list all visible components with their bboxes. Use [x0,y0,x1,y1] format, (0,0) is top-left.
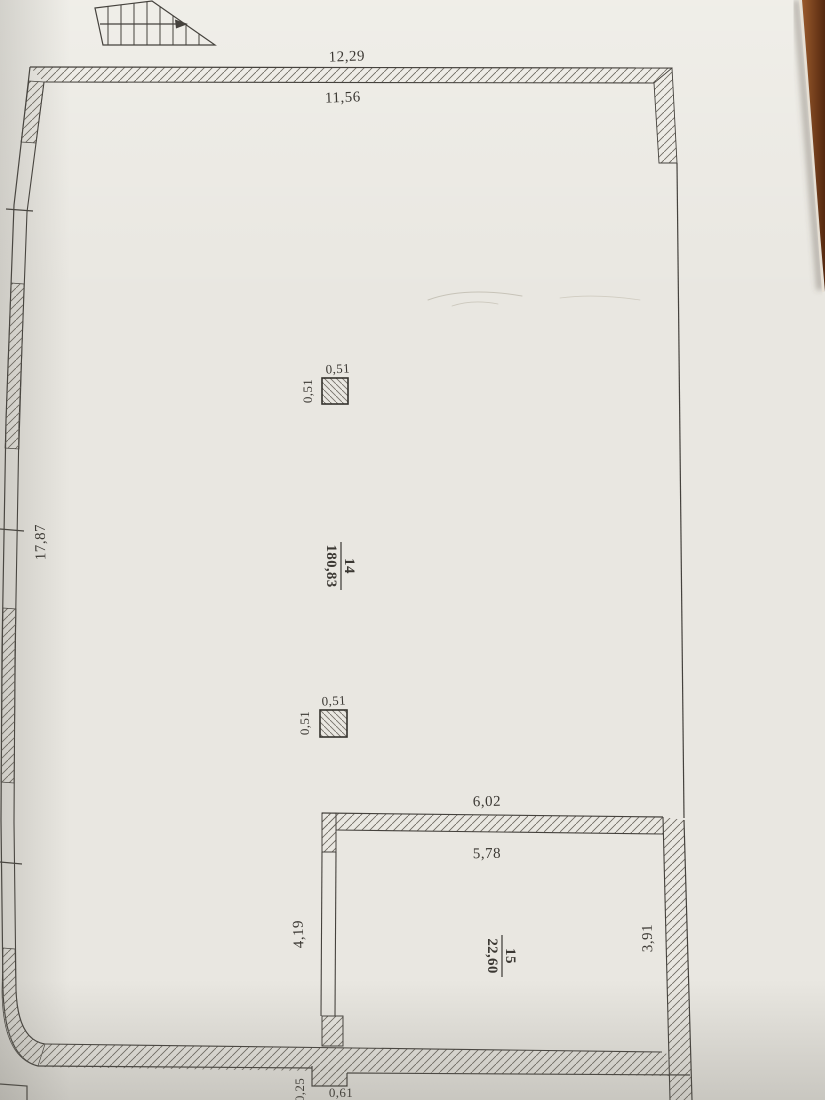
dim-partition-top: 6,02 [473,794,502,810]
dim-column-1-side: 0,51 [300,379,315,403]
dim-column-2-top: 0,51 [321,692,346,708]
room-15-area: 22,60 [484,938,500,973]
dim-column-2-side: 0,51 [297,711,312,735]
column-1 [322,378,348,404]
dim-top-inner: 11,56 [325,89,361,106]
room-15-number: 15 [502,948,518,964]
room-14-number: 14 [341,558,357,574]
floorplan-drawing: 12,29 11,56 17,87 0,51 0,51 0,51 0,51 14… [0,0,825,1100]
dim-top-outer: 12,29 [328,48,365,65]
pier-hatch [312,1066,347,1086]
top-wall [30,67,672,83]
dim-pier-offset: 0,25 [292,1078,307,1100]
dim-room15-width: 5,78 [473,846,502,862]
dim-left-height: 17,87 [33,524,50,561]
room15-left-wall-top-hatch [322,813,336,852]
dim-pier-width: 0,61 [329,1085,353,1100]
room15-left-wall-bottom-hatch [322,1016,343,1046]
column-2 [320,710,347,737]
left-wall-hatch-3 [1,608,16,783]
room-14-area: 180,83 [323,544,339,587]
dim-room15-left-height: 4,19 [291,920,308,949]
dim-column-1-top: 0,51 [325,360,350,376]
floorplan-photo: 12,29 11,56 17,87 0,51 0,51 0,51 0,51 14… [0,0,825,1100]
dim-room15-right-height: 3,91 [640,924,656,953]
